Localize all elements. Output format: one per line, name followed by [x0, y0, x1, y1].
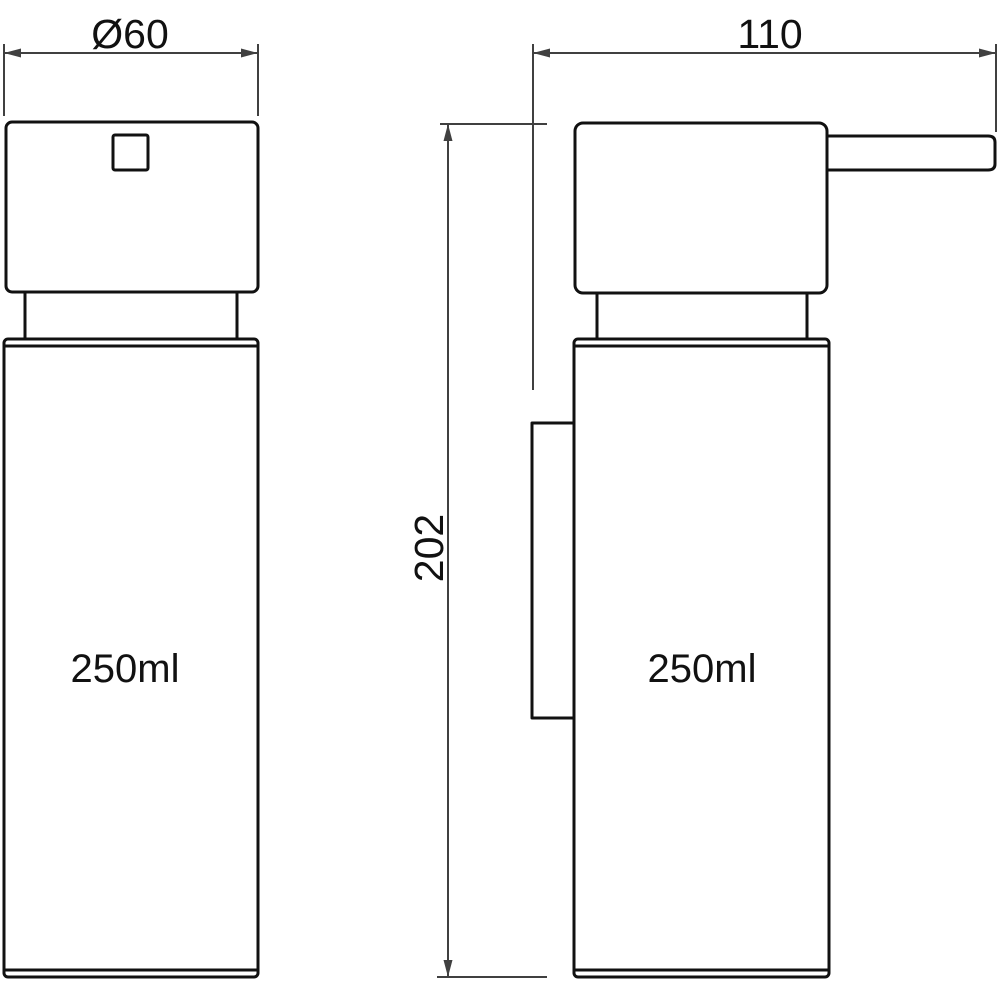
soap-dispenser-dimension-drawing: Ø60 250ml 110 [0, 0, 1000, 1000]
neck-front [25, 292, 237, 340]
pump-head-side [575, 123, 827, 293]
arrowhead-left-icon [533, 49, 550, 58]
side-volume-label: 250ml [648, 647, 757, 691]
wall-mount-plate-side [532, 423, 574, 718]
neck-side [597, 293, 807, 339]
pump-button-front [113, 135, 148, 170]
side-width-label: 110 [737, 11, 802, 57]
arrowhead-right-icon [241, 49, 258, 58]
side-view: 110 202 250ml [406, 11, 996, 977]
side-height-dimension: 202 [406, 124, 547, 977]
spout-nozzle-side [827, 136, 995, 170]
arrowhead-left-icon [4, 49, 21, 58]
front-view: Ø60 250ml [4, 11, 258, 977]
technical-drawing-canvas: Ø60 250ml 110 [0, 0, 1000, 1000]
side-height-label: 202 [406, 514, 452, 582]
arrowhead-up-icon [444, 124, 453, 141]
front-diameter-label: Ø60 [91, 11, 169, 57]
arrowhead-right-icon [979, 49, 996, 58]
front-diameter-dimension: Ø60 [4, 11, 258, 116]
front-volume-label: 250ml [71, 647, 180, 691]
arrowhead-down-icon [444, 960, 453, 977]
